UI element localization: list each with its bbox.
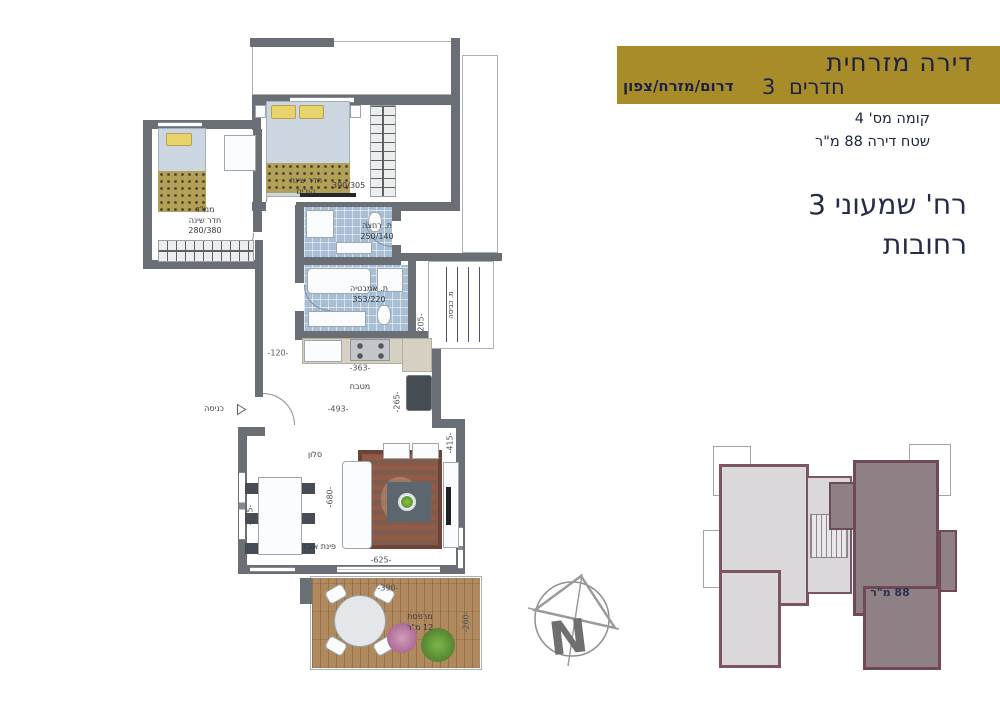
entrance-arrow-icon	[236, 403, 247, 416]
sofa	[342, 461, 372, 549]
compass-north-letter: N	[546, 608, 591, 666]
stove	[350, 339, 390, 361]
nightstand-right	[350, 105, 361, 118]
title-box: דירה מזרחית 3 חדרים דרום/מזרח/צפון	[617, 46, 1000, 104]
wall-laundry-top	[401, 253, 502, 261]
keyplan-east-ledge	[939, 530, 957, 592]
rooms-count: 3	[762, 75, 775, 99]
dim-kitchen-top: -363-	[349, 364, 370, 373]
dining-chair	[302, 483, 315, 494]
double-bed-pillow-right	[299, 105, 324, 119]
apartment-meta: קומה מס' 4 שטח דירה 88 מ"ר	[815, 108, 930, 154]
dim-kitchen-main: -493-	[327, 405, 348, 414]
roof-terrace-outline	[252, 41, 457, 95]
dim-dining-side: -305-	[246, 504, 255, 525]
parents-room-dims: 390/305	[332, 181, 365, 192]
sofa-cushion	[412, 443, 439, 459]
building-key-plan: 88 מ"ר	[703, 438, 959, 674]
parents-closet	[370, 105, 396, 197]
dining-chair	[302, 513, 315, 524]
kitchen-label: מטבח	[342, 382, 378, 393]
dim-kitchen-side: -265-	[393, 391, 402, 412]
wall-terrace-top	[250, 38, 334, 47]
wall-shower-bath-divider	[295, 257, 401, 265]
sofa-cushion	[383, 443, 410, 459]
wall-bath-right	[408, 261, 416, 331]
keyplan-west-unit-lower	[719, 570, 781, 668]
wall-hall-left	[255, 240, 263, 397]
shower-stall	[306, 210, 334, 238]
houseplant	[401, 496, 413, 508]
dim-balcony-depth: -260-	[462, 611, 471, 632]
address-line2: רחובות	[808, 225, 967, 265]
dim-service: -205-	[417, 313, 426, 334]
parents-room-label: חדר שינה הורים	[283, 176, 329, 197]
single-bed-pillow	[166, 133, 192, 146]
tv	[446, 487, 451, 525]
laundry-label: מ. כביסה	[447, 291, 455, 319]
dim-hall: -120-	[267, 349, 288, 358]
bath-door-opening	[295, 283, 304, 311]
drying-rack	[436, 267, 486, 342]
dim-salon-right: -415-	[446, 432, 455, 453]
mamad-label-dims: 280/380	[175, 226, 235, 237]
address-line1: רח' שמעוני 3	[808, 185, 967, 225]
green-plant	[421, 628, 455, 662]
mamad-label-line1: ממ"ד	[175, 205, 235, 216]
salon-bottom-window	[250, 567, 295, 572]
bathroom-label: ת. אמבטיה 353/220	[338, 284, 400, 305]
wall-mamad-left	[143, 120, 152, 269]
compass-rose: N	[525, 566, 620, 668]
wall-kitchen-step	[432, 419, 465, 428]
project-address: רח' שמעוני 3 רחובות	[808, 185, 967, 265]
parents-label-line1: חדר שינה	[283, 176, 329, 187]
kitchen-sink	[304, 340, 342, 362]
shower-room-sink	[336, 242, 372, 254]
parents-label-line2: הורים	[283, 187, 329, 198]
wall-balcony-stub	[300, 578, 312, 604]
balcony-label: מרפסת 12 מ"ר	[395, 612, 445, 633]
keyplan-area-label: 88 מ"ר	[855, 586, 925, 599]
apartment-area: שטח דירה 88 מ"ר	[815, 131, 930, 154]
dining-label: פינת אוכל	[289, 542, 349, 553]
mamad-closet	[158, 240, 254, 262]
toilet-bathroom	[377, 305, 391, 325]
floor-plan: ממ"ד חדר שינה 280/380 חדר שינה הורים 390…	[140, 35, 515, 695]
kitchen-counter-side	[402, 338, 432, 372]
balcony-table	[334, 595, 386, 647]
dim-salon-mid: -680-	[326, 486, 335, 507]
balcony-label-line2: 12 מ"ר	[395, 623, 445, 634]
shower-room-label: ת. רחצה 250/140	[356, 221, 398, 242]
floor-number: קומה מס' 4	[815, 108, 930, 131]
mamad-label-line2: חדר שינה	[175, 216, 235, 227]
balcony-sliding-door	[337, 566, 440, 573]
salon-label: סלון	[297, 450, 333, 461]
fridge	[406, 375, 432, 411]
apartment-title: דירה מזרחית	[826, 48, 973, 77]
mamad-window	[158, 122, 202, 127]
dim-balcony-width: -390-	[377, 584, 398, 593]
bath-label-name: ת. אמבטיה	[338, 284, 400, 295]
shower-label-name: ת. רחצה	[356, 221, 398, 232]
dim-salon-bottom: -625-	[370, 556, 391, 565]
wall-bedroom-right	[451, 95, 460, 211]
desk	[224, 135, 256, 171]
orientation-label: דרום/מזרח/צפון	[623, 77, 734, 95]
dining-chair	[245, 543, 258, 554]
bedroom-door-opening	[266, 202, 296, 211]
entrance-label: כניסה	[196, 404, 232, 415]
nightstand-left	[255, 105, 266, 118]
mamad-label: ממ"ד חדר שינה 280/380	[175, 205, 235, 237]
balcony-label-line1: מרפסת	[395, 612, 445, 623]
shower-label-dims: 250/140	[356, 232, 398, 243]
wall-terrace-right	[451, 38, 460, 98]
dining-chair	[245, 483, 258, 494]
bath-vanity	[308, 311, 366, 327]
double-bed-pillow-left	[271, 105, 296, 119]
exterior-ledge	[462, 55, 498, 253]
wall-kitchen-right	[432, 338, 441, 427]
bath-label-dims: 353/220	[338, 295, 400, 306]
entrance-door-arc	[263, 393, 295, 425]
rooms-word: חדרים	[789, 75, 845, 99]
wall-bath-left	[295, 205, 304, 339]
